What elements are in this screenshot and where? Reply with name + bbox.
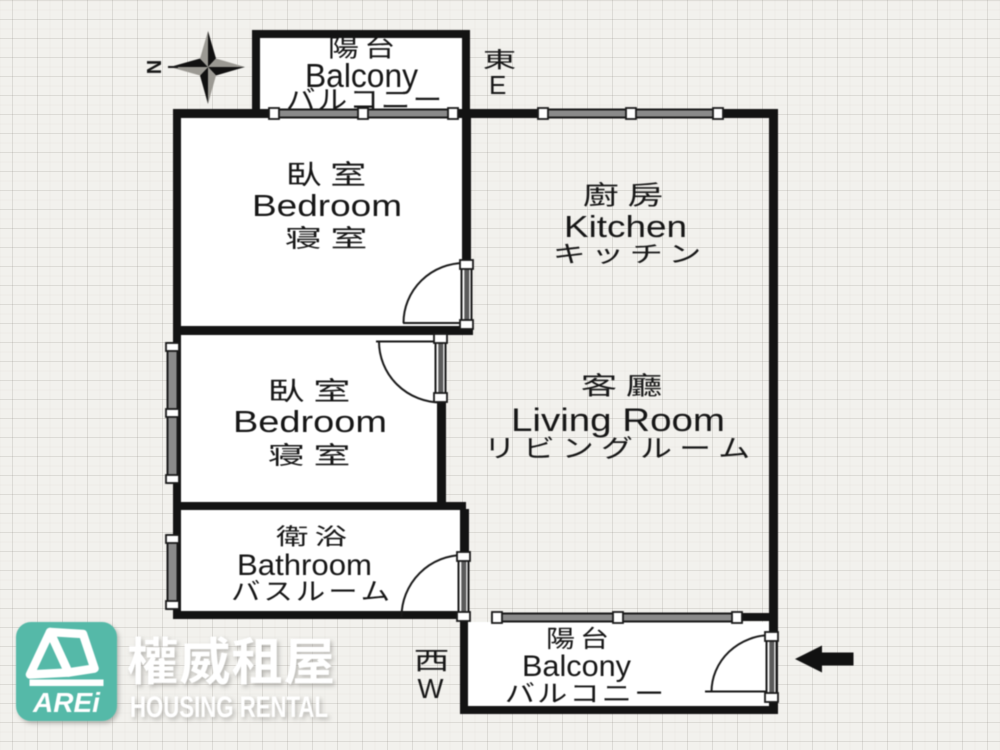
svg-text:Balcony: Balcony	[305, 57, 418, 94]
svg-text:Bedroom: Bedroom	[252, 188, 402, 223]
svg-text:Bedroom: Bedroom	[233, 404, 387, 439]
svg-text:HOUSING RENTAL: HOUSING RENTAL	[130, 691, 328, 724]
svg-text:AREi: AREi	[32, 687, 101, 718]
svg-text:Living Room: Living Room	[511, 402, 725, 438]
svg-text:N: N	[144, 60, 166, 74]
svg-text:Balcony: Balcony	[522, 650, 631, 683]
svg-text:Kitchen: Kitchen	[564, 209, 687, 244]
svg-text:E: E	[489, 70, 506, 100]
svg-text:W: W	[418, 673, 444, 704]
svg-text:Bathroom: Bathroom	[237, 549, 372, 582]
